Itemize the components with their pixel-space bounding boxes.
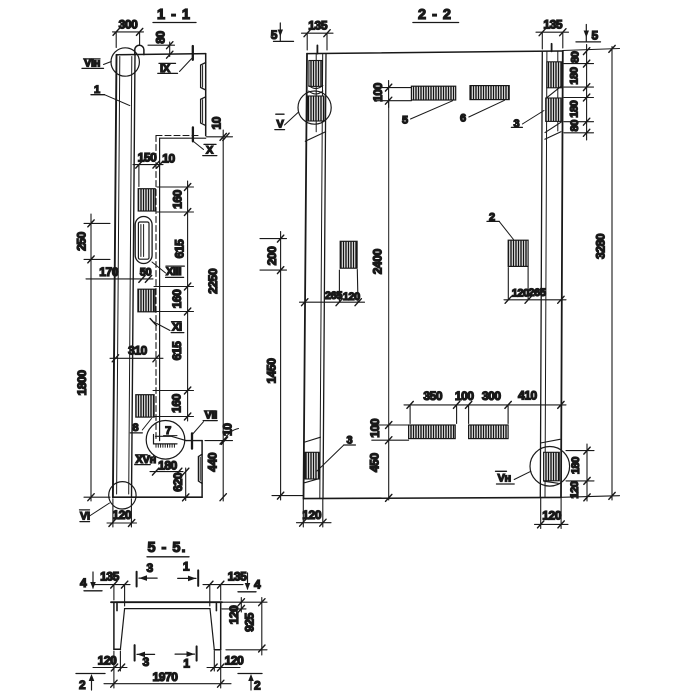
svg-text:350: 350 <box>423 389 443 403</box>
svg-text:925: 925 <box>243 612 257 632</box>
svg-text:120: 120 <box>98 654 118 668</box>
svg-text:135: 135 <box>308 19 328 33</box>
svg-text:135: 135 <box>543 18 563 32</box>
svg-text:160: 160 <box>170 393 184 413</box>
svg-text:8: 8 <box>133 422 139 434</box>
svg-text:VII: VII <box>205 410 218 422</box>
svg-text:VI: VI <box>80 511 90 523</box>
svg-text:5: 5 <box>592 29 599 43</box>
svg-text:180: 180 <box>569 67 581 84</box>
svg-text:3: 3 <box>147 561 154 575</box>
svg-text:410: 410 <box>518 389 538 403</box>
svg-text:120: 120 <box>112 508 132 522</box>
svg-text:4: 4 <box>254 578 261 592</box>
svg-text:135: 135 <box>100 570 120 584</box>
svg-text:5 - 5.: 5 - 5. <box>147 540 186 556</box>
svg-text:100: 100 <box>368 418 382 438</box>
svg-text:10: 10 <box>210 116 224 129</box>
svg-text:135: 135 <box>228 570 248 584</box>
svg-text:VIн: VIн <box>84 58 100 70</box>
svg-text:200: 200 <box>265 246 279 266</box>
svg-text:3: 3 <box>142 655 149 669</box>
svg-text:2: 2 <box>254 679 261 693</box>
svg-text:2250: 2250 <box>206 268 220 294</box>
svg-text:10: 10 <box>221 423 235 436</box>
svg-text:250: 250 <box>75 231 89 251</box>
svg-text:440: 440 <box>206 452 220 472</box>
svg-text:180: 180 <box>569 100 581 117</box>
svg-text:160: 160 <box>171 189 185 209</box>
svg-text:X: X <box>206 145 214 157</box>
svg-text:XI: XI <box>172 322 182 334</box>
svg-text:615: 615 <box>173 239 187 259</box>
svg-text:3: 3 <box>514 118 520 130</box>
svg-text:80: 80 <box>569 120 581 132</box>
svg-text:1800: 1800 <box>75 370 89 396</box>
svg-text:450: 450 <box>368 453 382 473</box>
svg-text:265: 265 <box>325 290 342 302</box>
svg-text:265: 265 <box>528 287 545 299</box>
svg-text:80: 80 <box>154 31 168 44</box>
svg-text:3280: 3280 <box>593 233 607 259</box>
svg-text:300: 300 <box>119 18 139 32</box>
svg-text:XIII: XIII <box>166 266 182 278</box>
svg-text:620: 620 <box>171 472 185 492</box>
svg-text:120: 120 <box>225 654 245 668</box>
svg-text:50: 50 <box>140 266 152 278</box>
svg-text:100: 100 <box>455 389 475 403</box>
svg-text:2 - 2: 2 - 2 <box>418 7 452 23</box>
svg-text:1970: 1970 <box>152 670 178 684</box>
svg-text:5: 5 <box>271 28 278 42</box>
svg-text:1 - 1: 1 - 1 <box>157 7 191 23</box>
svg-text:180: 180 <box>570 457 582 474</box>
svg-text:6: 6 <box>460 113 466 125</box>
svg-text:5: 5 <box>402 115 408 127</box>
svg-text:150: 150 <box>138 151 158 165</box>
svg-text:V: V <box>277 119 285 131</box>
svg-text:1: 1 <box>183 657 190 671</box>
svg-text:120: 120 <box>302 508 322 522</box>
svg-text:310: 310 <box>128 343 148 357</box>
svg-text:2: 2 <box>79 678 86 692</box>
svg-text:2400: 2400 <box>371 248 385 274</box>
svg-text:120: 120 <box>542 509 562 523</box>
svg-text:120: 120 <box>569 481 581 498</box>
svg-text:80: 80 <box>570 51 582 63</box>
svg-text:100: 100 <box>371 82 385 102</box>
svg-text:300: 300 <box>482 389 502 403</box>
svg-text:120: 120 <box>512 287 529 299</box>
svg-text:Vн: Vн <box>498 473 511 485</box>
svg-text:120: 120 <box>343 291 360 303</box>
svg-text:4: 4 <box>80 576 87 590</box>
svg-text:170: 170 <box>99 265 119 279</box>
svg-text:180: 180 <box>158 458 178 472</box>
svg-text:1: 1 <box>183 560 190 574</box>
svg-text:160: 160 <box>170 289 184 309</box>
svg-text:120: 120 <box>227 605 241 625</box>
svg-text:615: 615 <box>170 341 184 361</box>
svg-text:1450: 1450 <box>265 358 279 384</box>
svg-text:10: 10 <box>162 152 175 166</box>
